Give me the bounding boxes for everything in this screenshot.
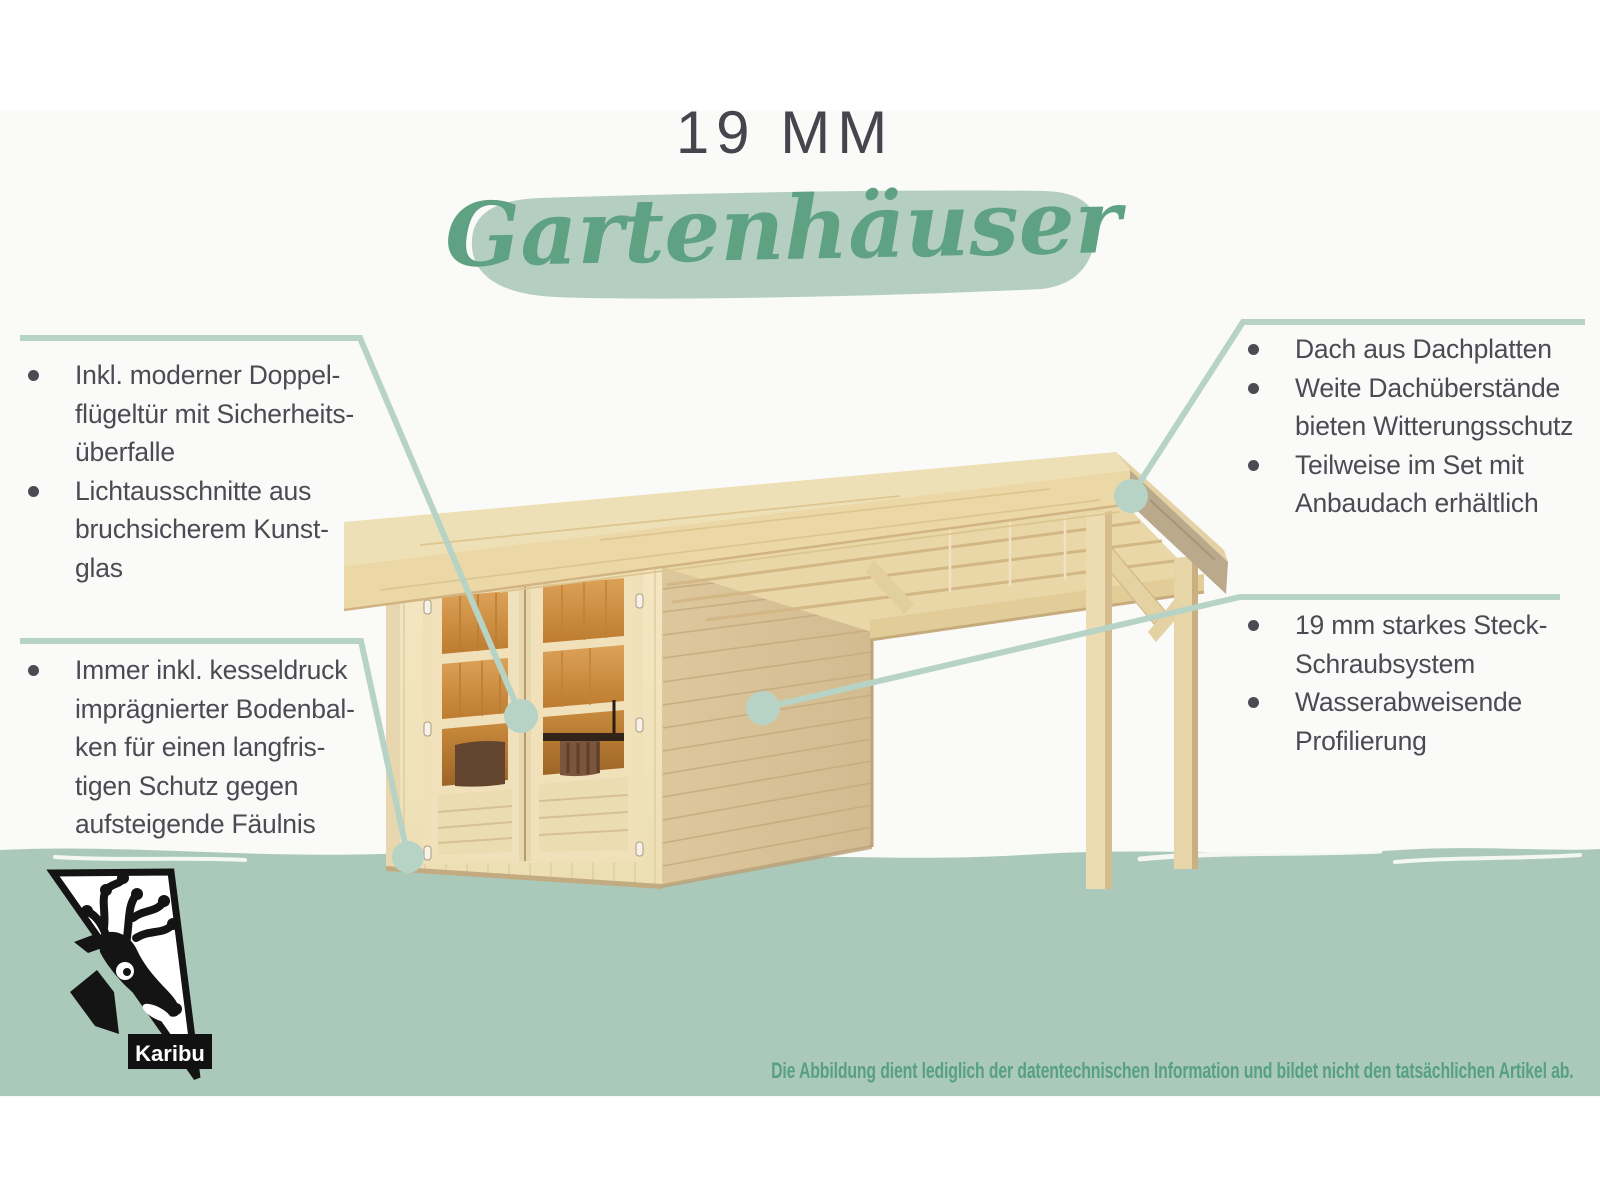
logo-brand-box: [128, 1034, 212, 1069]
illustration-canvas: [0, 0, 1600, 1200]
ground-band: [0, 848, 1600, 1096]
front-wall-left-trim: [386, 602, 400, 870]
callout-line-top-right: [1131, 322, 1585, 496]
door-glass-right: [543, 578, 624, 776]
brush-stroke: [472, 190, 1096, 298]
callout-dot-wall: [746, 691, 780, 725]
door-glass-left: [442, 591, 508, 787]
callout-dot-base: [392, 841, 424, 873]
callout-line-bottom-left: [20, 641, 408, 857]
callout-dot-door: [504, 699, 538, 733]
garden-house-illustration: [344, 452, 1228, 889]
callout-dot-roof: [1114, 479, 1148, 513]
infographic-page: 19 MM Gartenhäuser Inkl. moderner Doppel…: [0, 0, 1600, 1200]
